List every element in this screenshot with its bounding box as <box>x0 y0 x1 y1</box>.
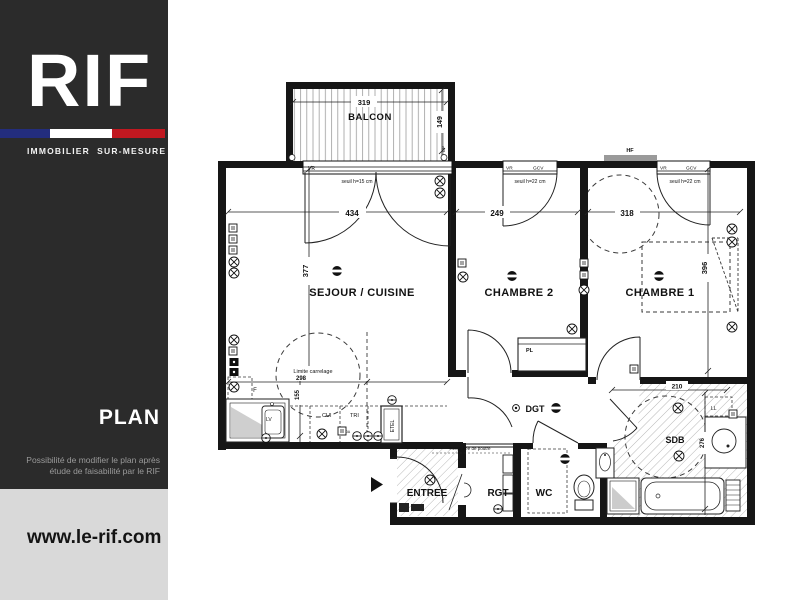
outlet-icon <box>230 358 239 366</box>
ll-label: LL <box>711 406 717 412</box>
outlet-icon <box>353 432 362 441</box>
dim-sdb-width: 210 <box>672 384 683 391</box>
socket-icon <box>229 268 239 278</box>
window-chambre2: VR GCV <box>503 161 557 174</box>
chambre1-door <box>597 337 640 380</box>
switch-icon <box>458 259 466 267</box>
ceiling-light-icon <box>507 271 518 281</box>
window-chambre1: VR GCV <box>657 161 710 174</box>
tri-label: TRI <box>350 413 359 419</box>
dim-sdb-depth: 276 <box>700 437 706 448</box>
towel-rail <box>726 480 740 511</box>
dim-balcon-width: 319 <box>358 98 371 107</box>
window-ch2-vr-label: VR <box>506 166 513 172</box>
website-url: www.le-rif.com <box>27 527 161 549</box>
outlet-icon <box>374 432 383 441</box>
socket-icon <box>727 322 737 332</box>
dim-sejour-depth: 377 <box>301 265 310 278</box>
ceiling-light-icon <box>654 271 665 281</box>
window-ch1-gcv-label: GCV <box>686 166 697 172</box>
wardrobe-outline <box>712 238 738 312</box>
socket-icon <box>727 224 737 234</box>
outlet-icon <box>494 505 503 514</box>
socket-icon <box>229 382 239 392</box>
wall-west-lower-b <box>390 503 397 519</box>
socket-icon <box>229 335 239 345</box>
kitchen-counter <box>226 399 289 442</box>
balcony-wall-top <box>286 82 454 89</box>
switch-icon <box>580 259 588 267</box>
spot-icon <box>513 405 520 412</box>
light-point-icon <box>425 475 435 485</box>
room-label-chambre1: CHAMBRE 1 <box>626 287 695 299</box>
room-label-entree: ENTREE <box>407 488 448 499</box>
outlet-icon <box>262 434 271 443</box>
sidebar-footer: www.le-rif.com <box>0 489 168 600</box>
toilet <box>574 475 594 510</box>
ceiling-light-icon <box>332 266 343 276</box>
dim-balcon-depth: 149 <box>437 116 444 128</box>
switch-icon <box>580 271 588 279</box>
window-ch1-vr-label: VR <box>660 166 667 172</box>
balcony-wall-right <box>448 82 455 162</box>
socket-icon <box>435 188 445 198</box>
wall-entree-rgt-b <box>458 505 466 517</box>
section-title: PLAN <box>99 406 160 430</box>
entree-cabinet <box>399 503 424 512</box>
hf-duct <box>604 155 657 161</box>
sidebar: RIF IMMOBILIER SUR-MESURE PLAN Possibili… <box>0 0 168 489</box>
outlet-icon <box>230 368 239 376</box>
light-point-icon <box>674 451 684 461</box>
switch-icon <box>229 235 237 243</box>
outlet-icon <box>364 432 373 441</box>
window-sejour: VR <box>303 161 452 174</box>
switch-icon <box>229 224 237 232</box>
etel-label: ETEL <box>390 420 396 433</box>
switch-icon <box>229 347 237 355</box>
brand-logo: RIF <box>27 44 152 118</box>
sidebar-note-line2: étude de faisabilité par le RIF <box>10 466 160 477</box>
room-label-chambre2: CHAMBRE 2 <box>485 287 554 299</box>
switch-icon <box>729 410 737 418</box>
seuil-sejour-label: seuil h=15 cm <box>342 179 373 185</box>
socket-icon <box>458 272 468 282</box>
dim-chambre2-width: 249 <box>490 209 504 218</box>
dim-cuisine-depth: 155 <box>295 389 301 400</box>
ep-left-label: EP <box>289 146 294 152</box>
switch-icon <box>338 427 346 435</box>
dim-carrelage: 298 <box>296 376 307 382</box>
frigo-label: F <box>253 388 257 394</box>
chambre2-door <box>468 330 511 373</box>
tricolor-flag-icon <box>0 129 165 138</box>
wall-left <box>218 161 226 450</box>
wall-sejour-ch2 <box>448 168 456 377</box>
room-label-rgt: RGT <box>487 488 508 499</box>
bathtub <box>641 478 724 514</box>
room-label-dgt: DGT <box>526 404 546 414</box>
window-ch2-gcv-label: GCV <box>533 166 544 172</box>
socket-icon <box>567 324 577 334</box>
shower <box>607 478 639 514</box>
placard <box>518 338 586 371</box>
socket-icon <box>229 257 239 267</box>
light-point-icon <box>673 403 683 413</box>
socket-icon <box>727 237 737 247</box>
switch-icon <box>229 246 237 254</box>
dim-chambre1-width: 318 <box>620 209 634 218</box>
room-label-sdb: SDB <box>665 435 685 445</box>
retombee-label: Retombée de poutre <box>449 446 491 451</box>
room-label-sejour: SEJOUR / CUISINE <box>309 287 414 299</box>
room-label-wc: WC <box>536 488 553 499</box>
washbasin <box>596 448 614 478</box>
socket-icon <box>579 285 589 295</box>
wall-wc-top-a <box>513 443 533 449</box>
ep-right-label: EP <box>441 146 446 152</box>
socket-icon <box>435 176 445 186</box>
page: VR VR GCV VR GCV <box>0 0 800 600</box>
sidebar-note: Possibilité de modifier le plan après ét… <box>10 455 160 477</box>
hf-label: HF <box>626 148 634 154</box>
wall-ch1-bottom-a <box>588 377 596 384</box>
lv-label: LV <box>266 417 272 423</box>
seuil-ch1-label: seuil h=22 cm <box>670 179 701 185</box>
rgt-shelves <box>503 455 513 511</box>
dgt-door <box>468 377 512 427</box>
wall-ch2-bottom-a <box>448 370 466 377</box>
room-label-balcon: BALCON <box>348 112 392 123</box>
wc-door <box>533 421 578 443</box>
placard-label: PL <box>526 348 534 354</box>
wall-right <box>747 161 755 525</box>
dim-sejour-width: 434 <box>345 209 359 218</box>
switch-icon <box>630 365 638 373</box>
entrance-arrow-icon <box>371 477 383 492</box>
sidebar-note-line1: Possibilité de modifier le plan après <box>10 455 160 466</box>
ep-left-icon <box>289 155 295 161</box>
wall-rgt-wc <box>513 443 521 517</box>
wall-bottom <box>390 517 755 525</box>
ceiling-light-icon <box>551 403 562 413</box>
ep-right-icon <box>441 155 447 161</box>
wall-bottom-left <box>218 442 463 449</box>
outlet-icon <box>388 396 397 405</box>
vanity <box>705 417 746 468</box>
cui-label: CUI <box>322 413 332 419</box>
dim-chambre1-depth: 396 <box>700 262 709 275</box>
ceiling-light-icon <box>560 454 571 464</box>
brand-tagline: IMMOBILIER SUR-MESURE <box>27 146 166 156</box>
wall-ch1-bottom-b <box>640 377 755 384</box>
seuil-ch2-label: seuil h=22 cm <box>515 179 546 185</box>
socket-icon <box>317 429 327 439</box>
